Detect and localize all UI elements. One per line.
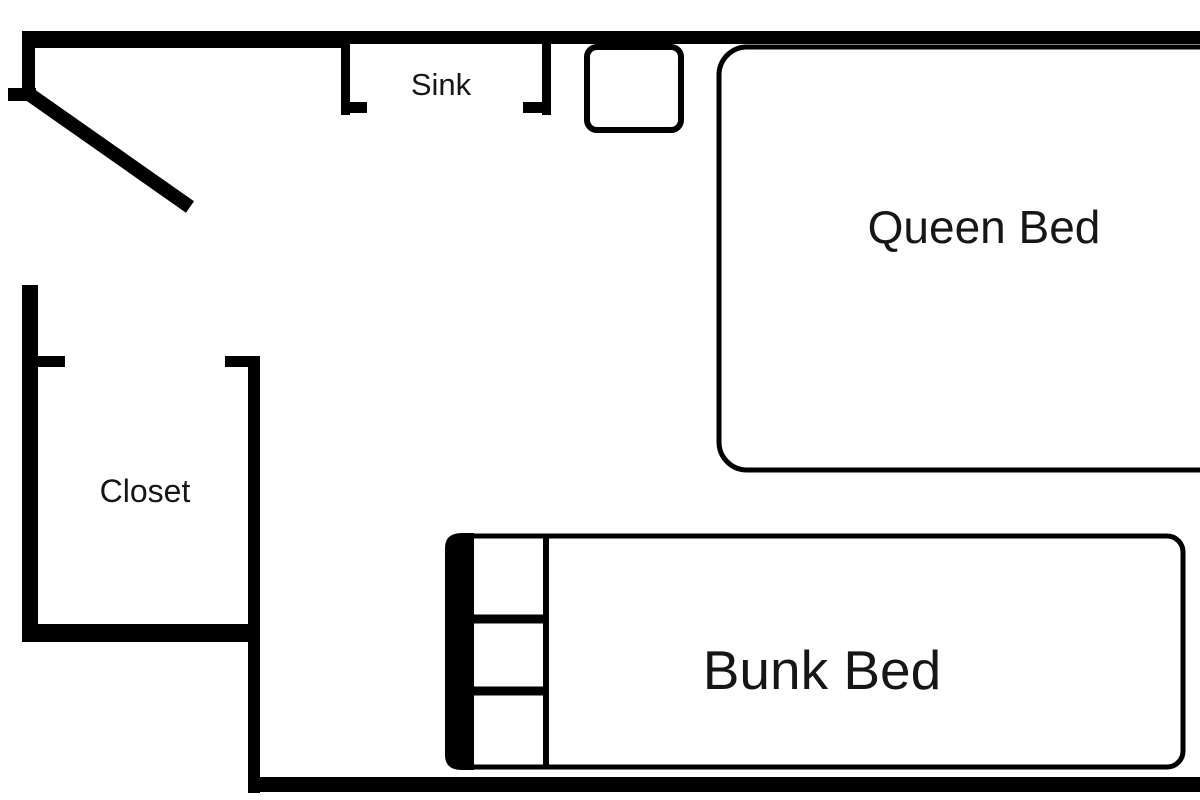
sink-right-jamb <box>542 44 551 115</box>
sink-label: Sink <box>411 67 472 102</box>
sink-right-jamb-foot <box>523 102 542 113</box>
queen-bed <box>719 47 1200 470</box>
left-wall <box>22 285 38 642</box>
top-wall <box>22 31 1200 44</box>
closet-bottom-wall <box>22 624 260 642</box>
fixture-square <box>587 47 681 130</box>
floor-plan-canvas: Sink Closet Queen Bed Bunk Bed <box>0 0 1200 800</box>
sink-left-jamb-foot <box>350 102 367 113</box>
top-wall-inner-line <box>35 44 346 48</box>
queen-bed-label: Queen Bed <box>868 201 1101 253</box>
bunk-bed-label: Bunk Bed <box>703 639 942 701</box>
bunk-bed-headboard-bar <box>445 533 474 770</box>
entry-door-leaf <box>29 94 190 207</box>
bottom-wall <box>248 777 1200 792</box>
floor-plan: Sink Closet Queen Bed Bunk Bed <box>0 0 1200 800</box>
closet-right-wall <box>248 356 260 793</box>
sink-left-jamb <box>341 44 350 115</box>
closet-door-left-foot <box>38 356 65 367</box>
closet-label: Closet <box>100 473 191 509</box>
